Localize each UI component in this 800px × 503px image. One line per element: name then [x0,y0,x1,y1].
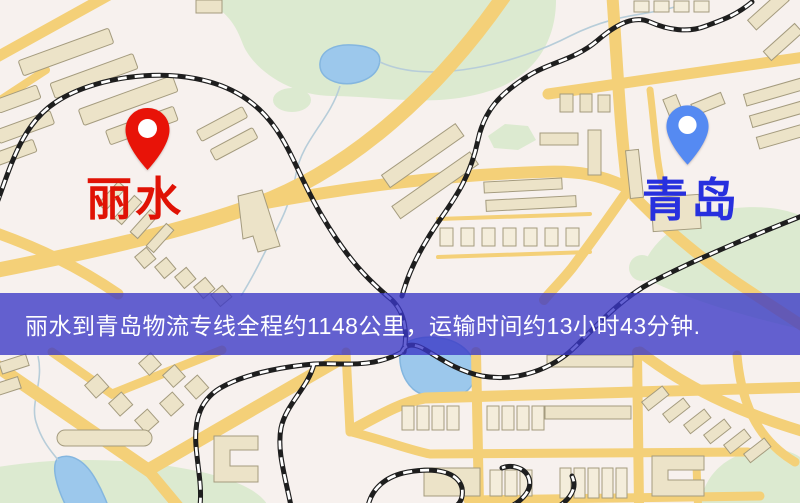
origin-pin-icon[interactable] [124,107,171,171]
destination-pin-hole [678,116,696,134]
destination-pin-body [666,105,708,164]
destination-pin-icon[interactable] [665,104,710,166]
route-info-banner: 丽水到青岛物流专线全程约1148公里，运输时间约13小时43分钟. [0,293,800,355]
destination-label: 青岛 [642,177,740,223]
origin-pin-body [126,108,170,170]
origin-label: 丽水 [86,176,184,222]
route-info-text: 丽水到青岛物流专线全程约1148公里，运输时间约13小时43分钟. [25,293,701,355]
map-canvas[interactable] [0,0,800,503]
origin-pin-hole [138,119,157,138]
map-screenshot: 丽水 青岛 丽水到青岛物流专线全程约1148公里，运输时间约13小时43分钟. [0,0,800,503]
